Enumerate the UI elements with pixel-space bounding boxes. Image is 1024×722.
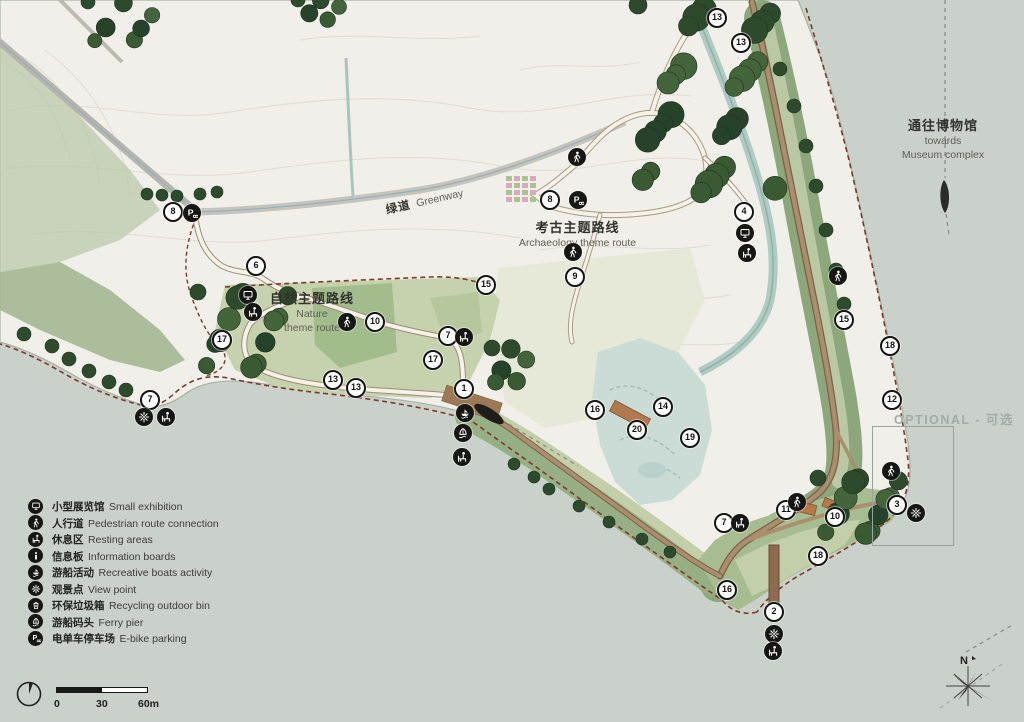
info-icon [31, 551, 41, 561]
pbike-icon: P [572, 194, 584, 206]
poi-marker-12: 12 [882, 390, 902, 410]
scale-tick-30: 30 [96, 698, 108, 710]
boats-icon [31, 567, 41, 577]
poi-marker-15: 15 [476, 275, 496, 295]
poi-marker-16: 16 [585, 400, 605, 420]
poi-marker-17: 17 [423, 350, 443, 370]
legend-item-bin: 环保垃圾箱 Recycling outdoor bin [28, 599, 219, 611]
map-icon-boats [456, 404, 474, 422]
map-icon-pbike: P [183, 204, 201, 222]
map-icon-view [907, 504, 925, 522]
scale-tick-60m: 60m [138, 698, 159, 710]
map-icon-resting [455, 328, 473, 346]
legend-item-info: 信息板 Information boards [28, 550, 219, 562]
poi-marker-13: 13 [323, 370, 343, 390]
poi-marker-10: 10 [825, 507, 845, 527]
resting-icon [28, 532, 43, 547]
scale-bar-track [56, 687, 148, 693]
poi-marker-18: 18 [880, 336, 900, 356]
map-icon-exhibition [239, 286, 257, 304]
map-icon-view [765, 625, 783, 643]
resting-icon [458, 331, 470, 343]
map-icon-walker [788, 493, 806, 511]
map-icon-pbike: P [569, 191, 587, 209]
map-icon-walker [568, 148, 586, 166]
view-icon [31, 584, 41, 594]
map-icon-ferry [454, 424, 472, 442]
svg-text:P: P [574, 195, 580, 205]
map-icon-resting [453, 448, 471, 466]
ferry-icon [31, 617, 41, 627]
exhibition-icon [28, 499, 43, 514]
ferry-icon [457, 427, 469, 439]
boats-icon [28, 565, 43, 580]
poi-marker-13: 13 [707, 8, 727, 28]
site-plan-map: OPTIONAL - 可选 自然主题路线 Nature theme route … [0, 0, 1024, 722]
legend-item-ferry: 游船码头 Ferry pier [28, 616, 219, 628]
map-icon-resting [244, 303, 262, 321]
map-icon-walker [829, 267, 847, 285]
map-icon-resting [738, 244, 756, 262]
optional-label: OPTIONAL - 可选 [894, 409, 1014, 428]
exhibition-icon [31, 501, 41, 511]
svg-text:P: P [32, 634, 37, 642]
legend-item-pbike: P电单车停车场 E-bike parking [28, 632, 219, 644]
scale-clock-icon [14, 679, 44, 709]
legend: 小型展览馆 Small exhibition人行道 Pedestrian rou… [28, 500, 219, 644]
view-icon [138, 411, 150, 423]
poi-marker-3: 3 [887, 495, 907, 515]
boats-icon [459, 407, 471, 419]
pbike-icon: P [186, 207, 198, 219]
walker-icon [571, 151, 583, 163]
scale-bar: 0 30 60m [14, 678, 184, 718]
map-icon-resting [731, 514, 749, 532]
view-icon [910, 507, 922, 519]
exhibition-icon [739, 227, 751, 239]
resting-icon [160, 411, 172, 423]
poi-marker-13: 13 [346, 378, 366, 398]
walker-icon [28, 515, 43, 530]
poi-marker-6: 6 [246, 256, 266, 276]
poi-marker-1: 1 [454, 379, 474, 399]
poi-marker-19: 19 [680, 428, 700, 448]
poi-marker-17: 17 [212, 330, 232, 350]
ferry-icon [28, 614, 43, 629]
map-icon-walker [338, 313, 356, 331]
legend-item-boats: 游船活动 Recreative boats activity [28, 566, 219, 578]
legend-item-view: 观景点 View point [28, 583, 219, 595]
view-icon [28, 581, 43, 596]
map-icon-view [135, 408, 153, 426]
resting-icon [767, 645, 779, 657]
optional-zone-outline [872, 426, 954, 546]
resting-icon [31, 534, 41, 544]
map-icon-walker [882, 462, 900, 480]
map-icon-resting [764, 642, 782, 660]
poi-marker-15: 15 [834, 310, 854, 330]
poi-marker-10: 10 [365, 312, 385, 332]
north-arrow: N [932, 650, 1012, 716]
legend-item-exhibition: 小型展览馆 Small exhibition [28, 500, 219, 512]
walker-icon [885, 465, 897, 477]
walker-icon [567, 246, 579, 258]
poi-marker-20: 20 [627, 420, 647, 440]
walker-icon [791, 496, 803, 508]
walker-icon [832, 270, 844, 282]
bin-icon [31, 600, 41, 610]
legend-item-walker: 人行道 Pedestrian route connection [28, 517, 219, 529]
resting-icon [247, 306, 259, 318]
map-icon-resting [157, 408, 175, 426]
map-icon-walker [564, 243, 582, 261]
resting-icon [734, 517, 746, 529]
poi-marker-4: 4 [734, 202, 754, 222]
pbike-icon: P [31, 633, 41, 643]
poi-marker-16: 16 [717, 580, 737, 600]
pbike-icon: P [28, 631, 43, 646]
bin-icon [28, 598, 43, 613]
poi-marker-9: 9 [565, 267, 585, 287]
info-icon [28, 548, 43, 563]
poi-marker-14: 14 [653, 397, 673, 417]
poi-marker-7: 7 [140, 390, 160, 410]
legend-item-resting: 休息区 Resting areas [28, 533, 219, 545]
poi-marker-8: 8 [163, 202, 183, 222]
poi-marker-18: 18 [808, 546, 828, 566]
svg-text:P: P [188, 208, 194, 218]
exhibition-icon [242, 289, 254, 301]
map-icon-exhibition [736, 224, 754, 242]
view-icon [768, 628, 780, 640]
scale-tick-0: 0 [54, 698, 60, 710]
poi-marker-2: 2 [764, 602, 784, 622]
nature-route-label: 自然主题路线 Nature theme route [252, 288, 372, 335]
scale-bar-fill [57, 688, 102, 692]
resting-icon [741, 247, 753, 259]
north-label: N [960, 655, 968, 667]
museum-label: 通往博物馆 towards Museum complex [878, 115, 1008, 162]
poi-marker-13: 13 [731, 33, 751, 53]
resting-icon [456, 451, 468, 463]
poi-marker-8: 8 [540, 190, 560, 210]
walker-icon [31, 518, 41, 528]
walker-icon [341, 316, 353, 328]
